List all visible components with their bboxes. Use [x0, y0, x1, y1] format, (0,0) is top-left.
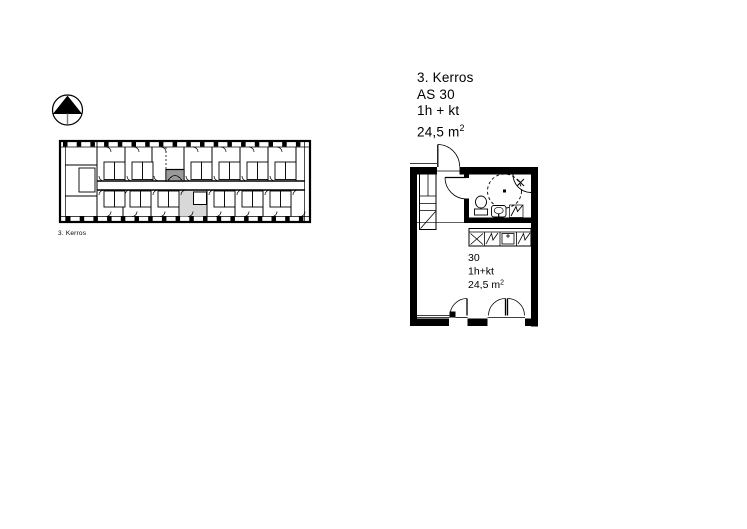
overview-floor-label: 3. Kerros [58, 230, 86, 237]
info-apartment: AS 30 [417, 87, 474, 104]
bathroom-fixtures [475, 174, 532, 218]
info-floor: 3. Kerros [417, 70, 474, 87]
apartment-label: 30 1h+kt 24,5 m2 [468, 252, 504, 291]
apartment-number: 30 [468, 252, 480, 264]
apartment-rooms: 1h+kt [468, 266, 494, 278]
apartment-area: 24,5 m2 [468, 279, 504, 291]
balcony-doors [450, 299, 525, 316]
apartment-area-exponent: 2 [500, 280, 504, 287]
bathroom-door [445, 178, 467, 200]
toilet-icon [476, 196, 487, 208]
overview-left-apartment [65, 141, 97, 222]
overview-highlighted-unit [180, 191, 207, 217]
info-area-value: 24,5 m [417, 124, 459, 139]
north-arrow-icon [50, 90, 86, 128]
info-area-exponent: 2 [459, 123, 464, 133]
overview-corridor [97, 181, 305, 190]
apartment-info: 3. Kerros AS 30 1h + kt 24,5 m2 [417, 70, 474, 141]
entry-closet [417, 173, 464, 230]
info-rooms: 1h + kt [417, 103, 474, 120]
floor-plan-sheet: 3. Kerros 3. Kerros AS 30 1h + kt 24,5 m… [0, 0, 747, 529]
apartment-windows [417, 316, 525, 318]
apartment-detail-plan: 30 1h+kt 24,5 m2 [403, 138, 545, 332]
apartment-area-value: 24,5 m [468, 279, 500, 291]
kitchenette [469, 229, 531, 247]
overview-stairwell [152, 147, 184, 181]
floor-overview-plan [57, 138, 313, 226]
